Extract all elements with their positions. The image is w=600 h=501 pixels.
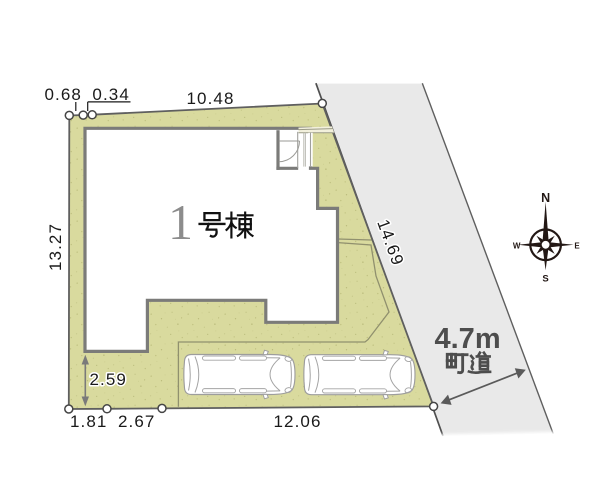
svg-text:2.67: 2.67 — [118, 412, 156, 431]
svg-text:E: E — [574, 241, 580, 250]
svg-text:0.68: 0.68 — [45, 85, 83, 104]
svg-text:4.7m: 4.7m — [435, 323, 501, 355]
svg-text:2.59: 2.59 — [90, 370, 128, 389]
svg-text:1.81: 1.81 — [70, 412, 108, 431]
svg-text:S: S — [542, 274, 548, 285]
svg-text:W: W — [513, 241, 521, 250]
svg-text:12.06: 12.06 — [274, 412, 322, 431]
svg-text:0.34: 0.34 — [92, 85, 129, 104]
svg-text:13.27: 13.27 — [46, 223, 65, 271]
svg-text:N: N — [541, 191, 550, 205]
svg-text:10.48: 10.48 — [187, 89, 235, 108]
svg-text:1: 1 — [168, 194, 193, 250]
